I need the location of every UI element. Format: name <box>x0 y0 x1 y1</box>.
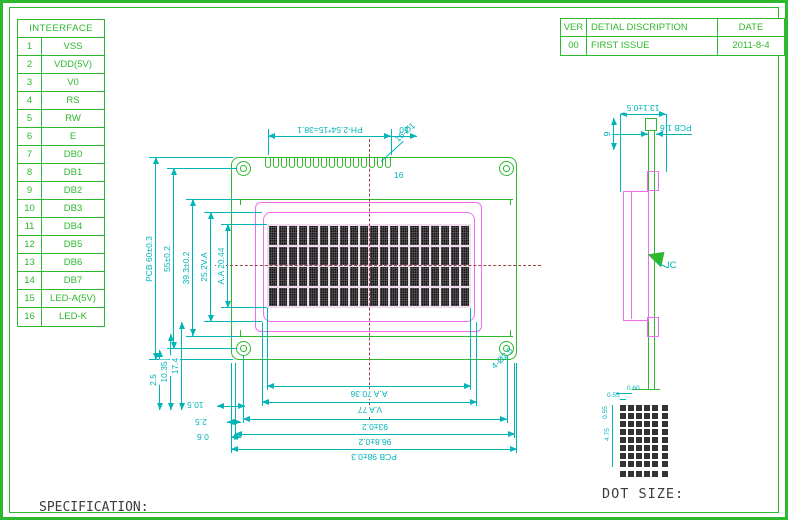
dot-cell <box>628 421 634 427</box>
pin-name: RW <box>42 110 104 127</box>
dim-hole-spacing-h: 93±0.2 <box>243 419 507 420</box>
dot-cell <box>620 405 626 411</box>
pin-name: V0 <box>42 74 104 91</box>
dim-window-edge-offset-label: 17.4 <box>170 356 180 377</box>
dot-cell <box>644 461 650 467</box>
display-cell <box>441 288 449 307</box>
side-pin-header <box>645 118 657 131</box>
pin-number: 13 <box>18 254 42 271</box>
display-cell <box>289 247 297 266</box>
display-cell <box>289 226 297 245</box>
dot-cell <box>636 461 642 467</box>
side-glass-line <box>631 192 632 319</box>
pin-name: DB4 <box>42 218 104 235</box>
centerline-vertical <box>369 139 370 425</box>
pin-name: DB5 <box>42 236 104 253</box>
dot-cell <box>662 405 668 411</box>
display-cell <box>390 226 398 245</box>
dot-cell <box>620 421 626 427</box>
dim-viewing-area-width-label: V.A 77 <box>355 405 383 415</box>
dimension-line <box>612 405 613 467</box>
display-cell <box>340 247 348 266</box>
dim-hole-spacing-v: 55±0.2 <box>173 168 174 349</box>
dim-2-5 <box>227 422 241 423</box>
display-cell <box>441 247 449 266</box>
dot-cell <box>628 413 634 419</box>
display-cell <box>410 288 418 307</box>
pin-name: DB0 <box>42 146 104 163</box>
pin-pad <box>297 158 303 168</box>
specification-title: SPECIFICATION: <box>39 497 305 518</box>
extension-line <box>231 363 232 453</box>
interface-pin-row: 12DB5 <box>18 236 104 254</box>
dot-cell <box>644 421 650 427</box>
interface-pin-row: 15LED-A(5V) <box>18 290 104 308</box>
pin-pad <box>385 158 391 168</box>
interface-pin-row: 7DB0 <box>18 146 104 164</box>
revision-ver: 00 <box>561 37 587 55</box>
display-cell <box>360 267 368 286</box>
pin-name: DB6 <box>42 254 104 271</box>
pin-name: E <box>42 128 104 145</box>
dot-cell <box>662 437 668 443</box>
dot-cell <box>620 471 626 477</box>
ic-label: IC <box>667 260 677 271</box>
pin-pad <box>345 158 351 168</box>
dim-pcb-thickness-right <box>656 134 692 135</box>
dot-cell <box>662 421 668 427</box>
pin-pad <box>313 158 319 168</box>
display-cell <box>279 247 287 266</box>
dim-column-height-label: 4.75 <box>604 428 611 441</box>
dim-active-area-width-label: A.A 70.36 <box>349 389 390 399</box>
display-cell <box>360 288 368 307</box>
display-cell <box>451 226 459 245</box>
pin-number: 16 <box>18 308 42 326</box>
display-cell <box>360 247 368 266</box>
display-cell <box>431 288 439 307</box>
display-cell <box>269 247 277 266</box>
pin-number: 7 <box>18 146 42 163</box>
pin-number: 3 <box>18 74 42 91</box>
display-cell <box>451 247 459 266</box>
display-cell <box>320 267 328 286</box>
dot-size-extra-column <box>662 405 668 467</box>
display-cell <box>330 267 338 286</box>
dot-cell <box>628 445 634 451</box>
display-cell <box>340 267 348 286</box>
extension-line <box>186 336 238 337</box>
extension-line <box>167 168 237 169</box>
display-cell <box>289 288 297 307</box>
display-cell <box>380 247 388 266</box>
pin-name: DB7 <box>42 272 104 289</box>
pin-number: 1 <box>18 38 42 55</box>
interface-table: INTEERFACE 1VSS2VDD(5V)3V04RS5RW6E7DB08D… <box>17 19 105 327</box>
display-cell <box>421 267 429 286</box>
dim-bezel-height: 39.3±0.2 <box>192 199 193 336</box>
extension-line <box>507 356 508 423</box>
display-cell <box>309 247 317 266</box>
dim-hole-spacing-v-label: 55±0.2 <box>162 244 172 274</box>
dot-cell <box>620 445 626 451</box>
pin-number: 6 <box>18 128 42 145</box>
display-cell <box>269 288 277 307</box>
display-cell <box>410 247 418 266</box>
display-cell <box>451 267 459 286</box>
display-cell <box>330 247 338 266</box>
dim-bezel-height-label: 39.3±0.2 <box>181 249 191 286</box>
dim-pcb-height: PCB 60±0.3 <box>155 157 156 360</box>
dot-size-extra-cell <box>662 471 668 477</box>
display-cell <box>350 247 358 266</box>
dim-viewing-area-width: V.A 77 <box>262 402 477 403</box>
pin-number: 12 <box>18 236 42 253</box>
display-cell <box>400 226 408 245</box>
display-cell <box>299 226 307 245</box>
dot-cell <box>628 437 634 443</box>
label-pin-index: 16 <box>394 170 403 180</box>
interface-pin-row: 10DB3 <box>18 200 104 218</box>
interface-pin-row: 4RS <box>18 92 104 110</box>
display-cell <box>320 247 328 266</box>
revision-header-date: DATE <box>718 19 784 36</box>
display-cell <box>299 288 307 307</box>
display-cell <box>390 267 398 286</box>
pin-name: VDD(5V) <box>42 56 104 73</box>
dim-pcb-height-label: PCB 60±0.3 <box>144 234 154 284</box>
revision-header-row: VER DETIAL DISCRIPTION DATE <box>561 19 784 37</box>
dim-pcb-width-label: PCB 98±0.3 <box>349 452 399 462</box>
interface-pin-row: 9DB2 <box>18 182 104 200</box>
interface-pin-row: 14DB7 <box>18 272 104 290</box>
interface-table-title: INTEERFACE <box>18 20 104 38</box>
display-cell <box>350 288 358 307</box>
dot-cell <box>652 413 658 419</box>
dim-overall-thickness: 13.1±0.5 <box>620 114 666 115</box>
interface-pin-row: 2VDD(5V) <box>18 56 104 74</box>
pin-number: 15 <box>18 290 42 307</box>
bezel-tab <box>510 199 511 205</box>
dim-dot-pitch-label: 0.60 <box>627 385 640 392</box>
display-cell <box>410 267 418 286</box>
extension-line <box>149 157 233 158</box>
extension-line <box>243 356 244 423</box>
dot-cell <box>636 429 642 435</box>
display-cell <box>380 226 388 245</box>
pin-number: 5 <box>18 110 42 127</box>
dot-cell <box>628 453 634 459</box>
display-cell <box>350 267 358 286</box>
dim-hole-edge-offset-label: 2.5 <box>148 372 158 388</box>
dot-cell <box>628 405 634 411</box>
dot-cell <box>662 413 668 419</box>
interface-pin-row: 13DB6 <box>18 254 104 272</box>
dim-pcb-thickness-label: PCB 1.6 <box>660 123 692 133</box>
pin-pad <box>321 158 327 168</box>
display-cell <box>370 267 378 286</box>
extension-line <box>167 348 237 349</box>
dot-cell <box>636 413 642 419</box>
display-cell <box>461 247 469 266</box>
dim-pcb-width: PCB 98±0.3 <box>231 449 517 450</box>
dim-active-area-height-label: A.A 20.44 <box>216 246 226 287</box>
display-cell <box>370 226 378 245</box>
dim-2-5-label: 2.5 <box>195 417 207 427</box>
display-cell <box>390 288 398 307</box>
display-cell <box>340 288 348 307</box>
extension-line <box>476 322 477 406</box>
display-cell <box>330 288 338 307</box>
dim-pin-length-label: 9 <box>602 130 612 139</box>
dot-cell <box>662 445 668 451</box>
dot-cell <box>644 471 650 477</box>
dim-bezel-edge-offset-label: 10.35 <box>159 359 169 384</box>
dot-cell <box>652 429 658 435</box>
pin-name: RS <box>42 92 104 109</box>
dim-pin-length: 9 <box>613 118 614 150</box>
dot-cell <box>652 461 658 467</box>
display-cell <box>360 226 368 245</box>
pin-pad <box>265 158 271 168</box>
display-cell <box>370 247 378 266</box>
pin-number: 4 <box>18 92 42 109</box>
pin-number: 2 <box>18 56 42 73</box>
dot-cell <box>644 453 650 459</box>
display-cell <box>320 288 328 307</box>
pin-name: LED-A(5V) <box>42 290 104 307</box>
pin-number: 10 <box>18 200 42 217</box>
display-cell <box>410 226 418 245</box>
pin-name: DB2 <box>42 182 104 199</box>
dim-0-6-label: 0.6 <box>197 432 209 442</box>
dot-cell <box>620 429 626 435</box>
extension-line <box>514 363 515 438</box>
pin-name: VSS <box>42 38 104 55</box>
display-cell <box>421 247 429 266</box>
display-cell <box>289 267 297 286</box>
dot-cell <box>636 421 642 427</box>
revision-date: 2011-8-4 <box>718 37 784 55</box>
display-cell <box>299 247 307 266</box>
interface-pin-row: 5RW <box>18 110 104 128</box>
revision-data-row: 00 FIRST ISSUE 2011-8-4 <box>561 37 784 55</box>
pin-name: DB3 <box>42 200 104 217</box>
interface-pin-row: 16LED-K <box>18 308 104 326</box>
extension-line <box>262 322 263 406</box>
display-cell <box>269 226 277 245</box>
side-bezel-tab-bottom <box>647 317 659 337</box>
dimension-line <box>616 393 632 394</box>
dot-cell <box>662 429 668 435</box>
dot-cell <box>652 437 658 443</box>
dot-cell <box>636 437 642 443</box>
display-cell <box>269 267 277 286</box>
display-cell <box>380 288 388 307</box>
pin-number: 11 <box>18 218 42 235</box>
mounting-hole <box>236 341 251 356</box>
interface-pin-row: 11DB4 <box>18 218 104 236</box>
interface-table-rows: 1VSS2VDD(5V)3V04RS5RW6E7DB08DB19DB210DB3… <box>18 38 104 326</box>
pin-pad <box>353 158 359 168</box>
mounting-hole <box>499 161 514 176</box>
pin-number: 8 <box>18 164 42 181</box>
revision-header-ver: VER <box>561 19 587 36</box>
dim-0-6 <box>231 437 241 438</box>
dot-cell <box>636 445 642 451</box>
bezel-top-line <box>237 199 513 200</box>
dot-cell <box>662 461 668 467</box>
dot-cell <box>620 413 626 419</box>
display-cell <box>431 226 439 245</box>
bezel-bottom-line <box>237 336 513 337</box>
display-cell <box>451 288 459 307</box>
pin-pad <box>305 158 311 168</box>
dim-96-8: 96.8±0.2 <box>235 434 515 435</box>
extension-line <box>470 308 471 390</box>
display-cell <box>309 267 317 286</box>
display-cell <box>421 226 429 245</box>
display-cell <box>461 226 469 245</box>
interface-pin-row: 8DB1 <box>18 164 104 182</box>
display-cell <box>350 226 358 245</box>
display-cell <box>309 226 317 245</box>
dim-96-8-label: 96.8±0.2 <box>356 437 393 447</box>
drawing-sheet: INTEERFACE 1VSS2VDD(5V)3V04RS5RW6E7DB08D… <box>0 0 788 520</box>
dot-cell <box>644 405 650 411</box>
mounting-hole <box>236 161 251 176</box>
dim-hole-spacing-h-label: 93±0.2 <box>360 422 390 432</box>
dot-size-title: DOT SIZE: <box>602 486 684 502</box>
dot-cell <box>644 437 650 443</box>
dot-cell <box>652 405 658 411</box>
pin-number: 14 <box>18 272 42 289</box>
pin-pad <box>273 158 279 168</box>
dim-overall-thickness-label: 13.1±0.5 <box>624 103 661 113</box>
display-cell <box>431 267 439 286</box>
display-cell <box>279 267 287 286</box>
pin-name: LED-K <box>42 308 104 326</box>
dot-cell <box>620 453 626 459</box>
dim-active-area-height: A.A 20.44 <box>227 224 228 308</box>
extension-line <box>267 308 268 390</box>
display-cell <box>461 288 469 307</box>
display-cell <box>370 288 378 307</box>
interface-pin-row: 6E <box>18 128 104 146</box>
side-bezel-tab-top <box>647 171 659 191</box>
bezel-tab <box>510 330 511 336</box>
display-cell <box>400 288 408 307</box>
pin-pad <box>337 158 343 168</box>
display-cell <box>279 226 287 245</box>
side-bezel <box>623 191 649 321</box>
dot-cell <box>628 471 634 477</box>
centerline-horizontal <box>215 265 541 266</box>
dim-viewing-area-height-label: 25.2V.A <box>199 250 209 283</box>
display-cell <box>390 247 398 266</box>
dimension-line <box>620 399 626 400</box>
dot-cell <box>636 471 642 477</box>
dot-cell <box>652 453 658 459</box>
pin-number: 9 <box>18 182 42 199</box>
display-cell <box>441 226 449 245</box>
display-cell <box>299 267 307 286</box>
dot-cell <box>636 405 642 411</box>
revision-header-description: DETIAL DISCRIPTION <box>587 19 718 36</box>
dot-cell <box>628 429 634 435</box>
display-cell <box>461 267 469 286</box>
extension-line <box>235 363 236 438</box>
display-cell <box>320 226 328 245</box>
bezel-tab <box>240 330 241 336</box>
display-cell <box>279 288 287 307</box>
dot-cell <box>628 461 634 467</box>
extension-line <box>620 114 621 192</box>
dim-10-5-label: 10.5 <box>187 400 204 410</box>
display-cell <box>400 267 408 286</box>
display-cell <box>400 247 408 266</box>
extension-line <box>516 363 517 453</box>
specification-block: SPECIFICATION: 1).STN(BLUE)/NEGATIVE/TRA… <box>39 455 305 520</box>
pin-pad <box>289 158 295 168</box>
dot-cell <box>636 453 642 459</box>
pin-name: DB1 <box>42 164 104 181</box>
display-cell <box>340 226 348 245</box>
dim-viewing-area-height: 25.2V.A <box>210 212 211 322</box>
display-cell <box>309 288 317 307</box>
revision-table: VER DETIAL DISCRIPTION DATE 00 FIRST ISS… <box>560 18 785 56</box>
display-cell <box>441 267 449 286</box>
dim-window-edge-offset: 17.4 <box>181 322 182 410</box>
dot-cell <box>652 445 658 451</box>
dim-dot-height-label: 0.55 <box>602 406 609 419</box>
dim-pin-pitch: PH-2.54*15=38.1 <box>268 136 391 137</box>
dot-cell <box>644 429 650 435</box>
dim-pcb-thickness-left <box>609 134 648 135</box>
dim-active-area-width: A.A 70.36 <box>267 386 471 387</box>
interface-pin-row: 3V0 <box>18 74 104 92</box>
pin-pad <box>281 158 287 168</box>
display-cell <box>330 226 338 245</box>
dot-cell <box>644 413 650 419</box>
revision-description: FIRST ISSUE <box>587 37 718 55</box>
dot-cell <box>620 437 626 443</box>
dot-size-grid <box>620 405 658 467</box>
display-cell <box>380 267 388 286</box>
display-cell <box>421 288 429 307</box>
dot-cell <box>652 471 658 477</box>
dot-cell <box>662 453 668 459</box>
dot-size-extra-row <box>620 471 658 477</box>
pin-pad <box>329 158 335 168</box>
dot-cell <box>644 445 650 451</box>
pin-pad <box>361 158 367 168</box>
interface-pin-row: 1VSS <box>18 38 104 56</box>
display-cell <box>431 247 439 266</box>
dim-pin-pitch-label: PH-2.54*15=38.1 <box>295 125 364 135</box>
dot-cell <box>620 461 626 467</box>
bezel-tab <box>240 199 241 205</box>
dot-cell <box>652 421 658 427</box>
